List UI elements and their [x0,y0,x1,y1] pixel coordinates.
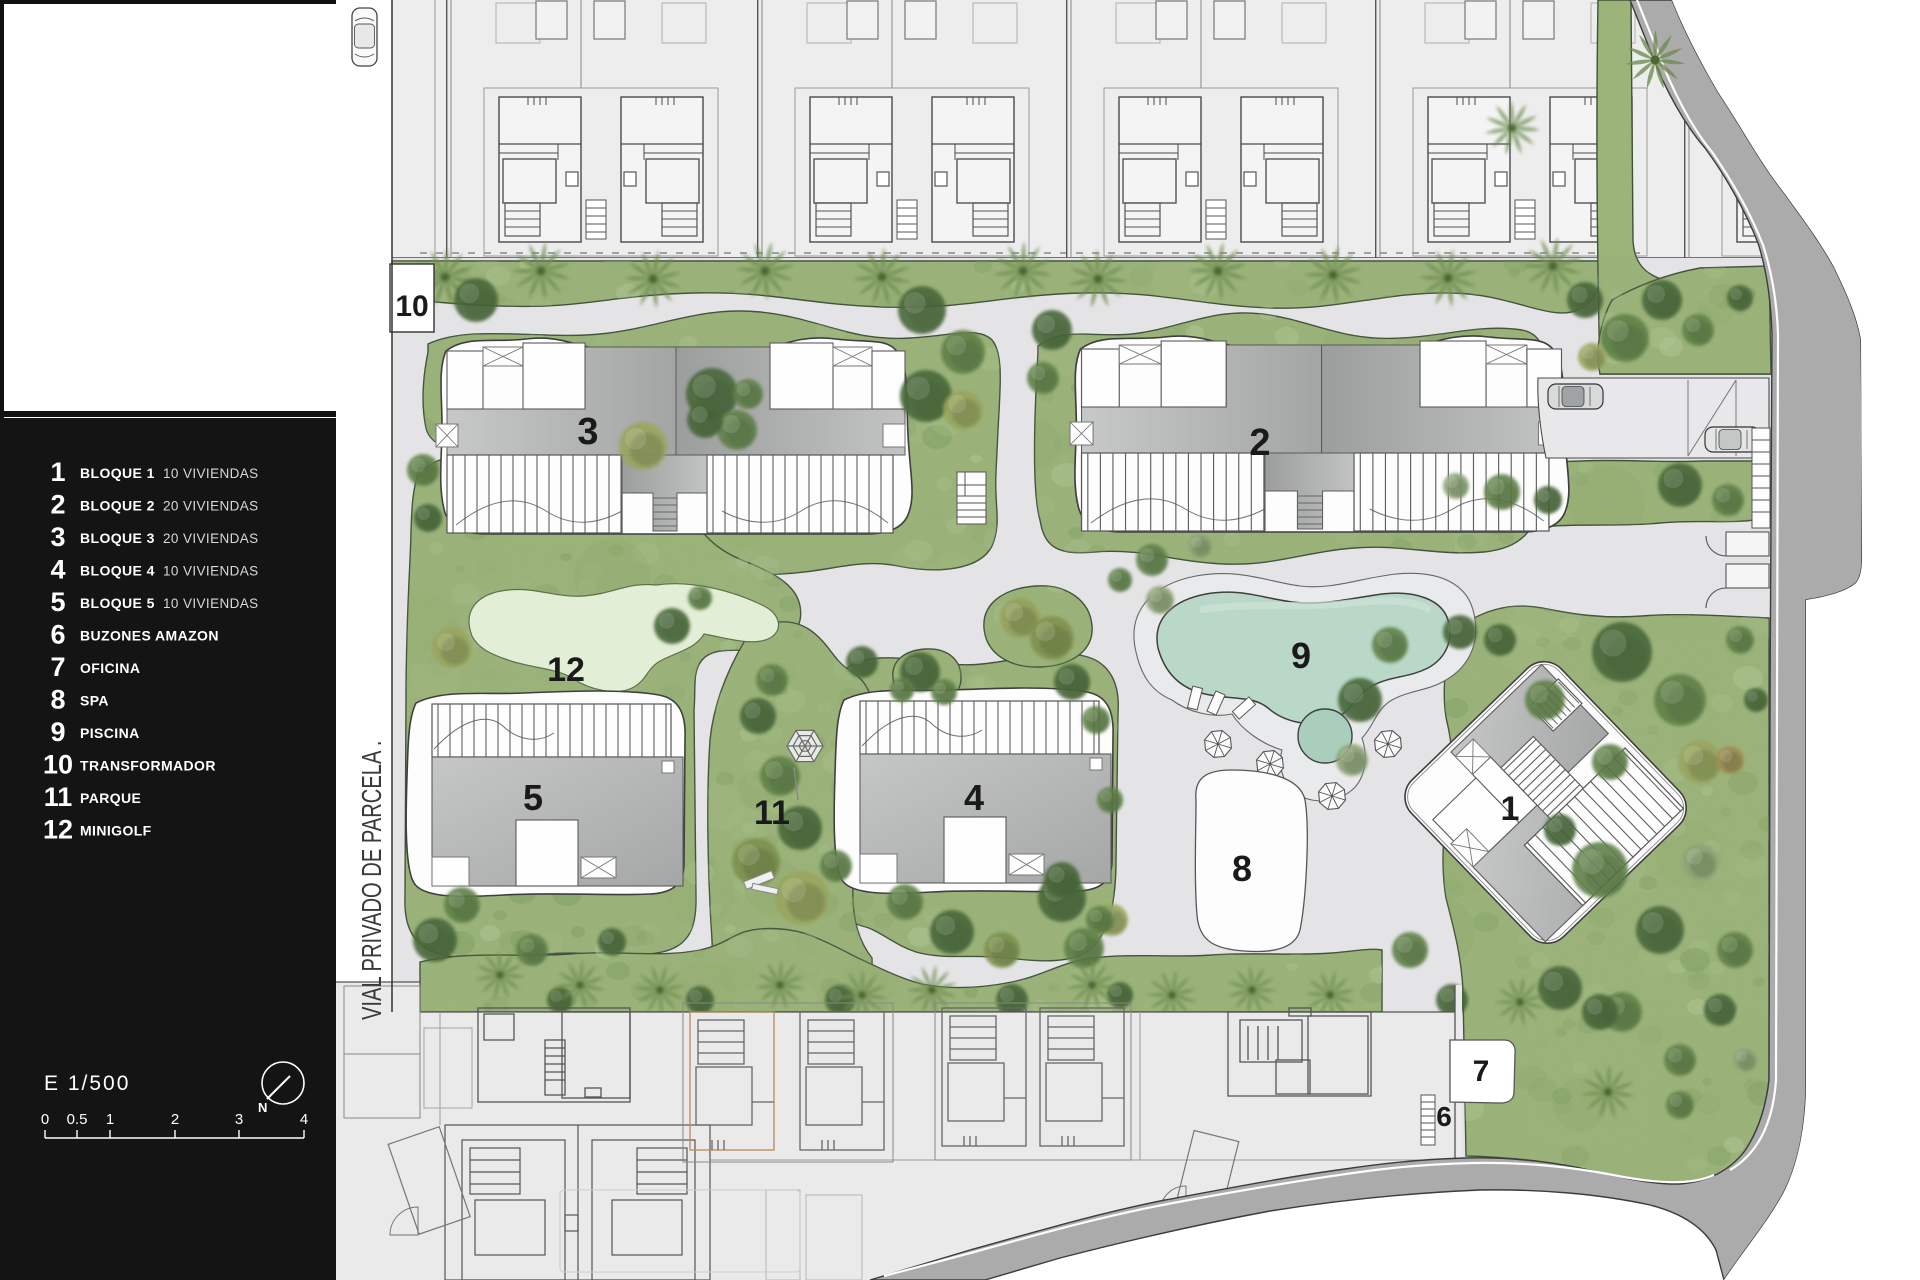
svg-text:BLOQUE 2: BLOQUE 2 [80,498,155,514]
svg-text:0.5: 0.5 [67,1111,88,1128]
svg-text:5: 5 [50,587,65,617]
svg-text:8: 8 [50,685,65,715]
svg-text:9: 9 [50,717,65,747]
svg-text:6: 6 [50,620,65,650]
svg-text:1: 1 [1501,790,1520,828]
svg-text:TRANSFORMADOR: TRANSFORMADOR [80,758,216,774]
svg-text:3: 3 [50,522,65,552]
svg-text:12: 12 [43,815,73,845]
svg-text:BLOQUE 4: BLOQUE 4 [80,563,155,579]
svg-text:VIAL PRIVADO DE PARCELA .: VIAL PRIVADO DE PARCELA . [357,741,388,1020]
svg-text:2: 2 [171,1111,179,1128]
svg-text:BLOQUE 1: BLOQUE 1 [80,465,155,481]
svg-text:20 VIVIENDAS: 20 VIVIENDAS [163,499,259,514]
svg-text:2: 2 [1249,422,1270,464]
svg-text:8: 8 [1232,848,1252,889]
svg-text:10 VIVIENDAS: 10 VIVIENDAS [163,596,259,611]
svg-text:10 VIVIENDAS: 10 VIVIENDAS [163,466,259,481]
svg-text:1: 1 [106,1111,114,1128]
svg-text:PARQUE: PARQUE [80,790,141,806]
svg-text:4: 4 [300,1111,308,1128]
svg-text:9: 9 [1291,635,1311,676]
svg-text:7: 7 [1473,1055,1490,1088]
svg-text:6: 6 [1436,1101,1452,1132]
svg-text:4: 4 [964,777,984,818]
svg-text:5: 5 [523,777,543,818]
svg-text:10: 10 [43,750,73,780]
svg-text:E 1/500: E 1/500 [44,1072,130,1095]
svg-text:7: 7 [50,652,65,682]
svg-text:3: 3 [235,1111,243,1128]
svg-text:20 VIVIENDAS: 20 VIVIENDAS [163,531,259,546]
svg-text:2: 2 [50,490,65,520]
svg-text:SPA: SPA [80,693,109,709]
svg-text:MINIGOLF: MINIGOLF [80,823,152,839]
svg-text:1: 1 [50,457,65,487]
svg-text:0: 0 [41,1111,49,1128]
svg-text:BLOQUE 3: BLOQUE 3 [80,530,155,546]
svg-text:10 VIVIENDAS: 10 VIVIENDAS [163,564,259,579]
svg-text:PISCINA: PISCINA [80,725,140,741]
svg-text:N: N [258,1100,267,1115]
svg-text:10: 10 [395,290,428,323]
svg-text:3: 3 [577,411,598,453]
svg-text:12: 12 [547,651,585,689]
svg-text:4: 4 [50,555,65,585]
svg-text:OFICINA: OFICINA [80,660,140,676]
svg-text:BUZONES AMAZON: BUZONES AMAZON [80,628,219,644]
svg-text:BLOQUE 5: BLOQUE 5 [80,595,155,611]
svg-text:11: 11 [754,794,790,832]
svg-text:11: 11 [44,782,73,812]
